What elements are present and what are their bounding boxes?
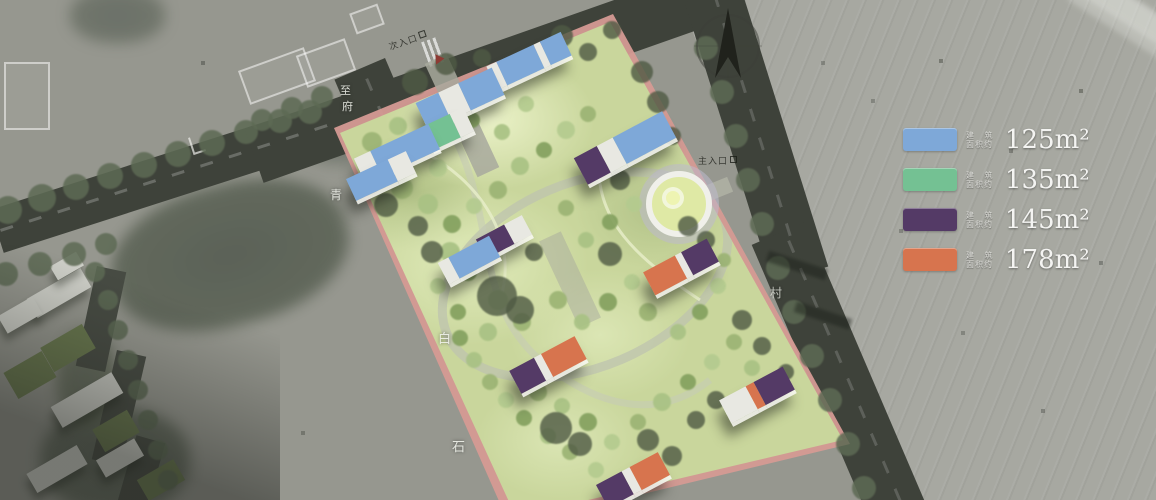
tree <box>624 274 640 290</box>
tree <box>494 124 510 140</box>
tree <box>311 86 333 108</box>
tree <box>85 262 105 282</box>
entrance-text: 次入口 <box>388 34 420 53</box>
tree <box>631 61 653 83</box>
tree <box>647 91 669 113</box>
legend-swatch-135 <box>903 168 957 191</box>
existing-building <box>0 296 42 333</box>
tree <box>63 174 89 200</box>
tree <box>408 216 428 236</box>
legend-prefix: 建 筑面积约 <box>966 171 998 189</box>
road-name-char: 至 <box>340 82 351 98</box>
tree <box>852 476 876 500</box>
legend-item: 建 筑面积约 135m² <box>903 168 1090 191</box>
legend-prefix-line2: 面积约 <box>966 260 998 269</box>
tree <box>118 350 138 370</box>
north-arrow-icon <box>692 2 764 92</box>
tree <box>568 432 592 456</box>
tree <box>429 159 447 177</box>
legend-swatch-145 <box>903 208 957 231</box>
legend-item: 建 筑面积约 178m² <box>903 248 1090 271</box>
legend-swatch-178 <box>903 248 957 271</box>
legend-value: 178m² <box>1005 245 1090 275</box>
main-entrance-label: 主入口 <box>698 154 737 167</box>
tree <box>588 462 604 478</box>
tree <box>602 214 618 230</box>
legend-value-unit: m² <box>1055 165 1090 195</box>
tree <box>98 290 118 310</box>
site-plan-canvas: 至 府 青 白 石 村 次入口 主入口 建 筑面积约 125m² 建 筑面积约 … <box>0 0 1156 500</box>
tree <box>818 388 842 412</box>
entrance-marker-icon <box>730 156 737 163</box>
tree <box>28 252 52 276</box>
tree <box>626 196 642 212</box>
tree <box>374 193 398 217</box>
tree <box>511 157 529 175</box>
road-name-char: 石 <box>452 436 465 455</box>
tree <box>536 142 552 158</box>
tree <box>557 121 575 139</box>
legend-value: 125m² <box>1005 125 1090 155</box>
tree <box>662 446 682 466</box>
tree <box>744 360 760 376</box>
legend-value-unit: m² <box>1055 245 1090 275</box>
legend-prefix-line1: 建 筑 <box>966 131 998 140</box>
tree <box>724 124 748 148</box>
tree <box>479 323 497 341</box>
tree <box>62 242 86 266</box>
legend-prefix-line1: 建 筑 <box>966 211 998 220</box>
tree <box>108 320 128 340</box>
tree <box>687 411 705 429</box>
tree <box>28 184 56 212</box>
tree <box>836 432 860 456</box>
tree <box>704 354 720 370</box>
legend-item: 建 筑面积约 125m² <box>903 128 1090 151</box>
legend-value: 135m² <box>1005 165 1090 195</box>
tree <box>97 163 123 189</box>
tree <box>574 314 590 330</box>
tree <box>579 43 597 61</box>
secondary-entrance-label: 次入口 <box>387 28 428 53</box>
tree <box>753 337 771 355</box>
tree <box>450 304 466 320</box>
legend-prefix: 建 筑面积约 <box>966 131 998 149</box>
tree <box>598 242 622 266</box>
road-name-char: 白 <box>438 328 451 347</box>
tree <box>630 414 646 430</box>
tree <box>430 278 446 294</box>
tree <box>402 69 428 95</box>
tree <box>165 141 191 167</box>
legend-swatch-125 <box>903 128 957 151</box>
legend-value-unit: m² <box>1055 125 1090 155</box>
tree <box>443 215 461 233</box>
tree <box>726 334 742 350</box>
tree <box>549 291 567 309</box>
tree <box>95 233 117 255</box>
legend-prefix-line1: 建 筑 <box>966 251 998 260</box>
tree <box>670 324 686 340</box>
tree <box>800 344 824 368</box>
tree <box>389 117 407 135</box>
tree <box>482 374 498 390</box>
legend-value-number: 135 <box>1005 165 1055 195</box>
legend-value-unit: m² <box>1055 205 1090 235</box>
tree <box>148 440 168 460</box>
tree <box>732 310 752 330</box>
legend-prefix-line1: 建 筑 <box>966 171 998 180</box>
legend-prefix-line2: 面积约 <box>966 220 998 229</box>
legend-prefix-line2: 面积约 <box>966 140 998 149</box>
tree <box>498 392 514 408</box>
tree <box>489 181 507 199</box>
tree <box>692 304 708 320</box>
legend: 建 筑面积约 125m² 建 筑面积约 135m² 建 筑面积约 145m² 建… <box>903 128 1090 288</box>
legend-value: 145m² <box>1005 205 1090 235</box>
building-outline <box>349 4 385 35</box>
tree <box>199 130 225 156</box>
legend-prefix-line2: 面积约 <box>966 180 998 189</box>
road-name-char: 青 <box>330 186 342 203</box>
tree <box>466 198 482 214</box>
tree <box>421 241 443 263</box>
tree <box>678 216 698 236</box>
tree <box>281 97 303 119</box>
tree <box>518 96 534 112</box>
tree <box>637 429 659 451</box>
entrance-text: 主入口 <box>698 157 728 167</box>
tree <box>653 393 671 411</box>
tree <box>680 374 696 390</box>
tree <box>736 168 760 192</box>
legend-prefix: 建 筑面积约 <box>966 251 998 269</box>
tree <box>452 330 468 346</box>
tree <box>710 278 726 294</box>
ground-texture <box>0 0 2 2</box>
tree <box>558 200 574 216</box>
tree <box>599 293 617 311</box>
tree <box>128 380 148 400</box>
tree <box>604 434 620 450</box>
legend-item: 建 筑面积约 145m² <box>903 208 1090 231</box>
tree <box>418 194 438 214</box>
tree <box>0 262 18 286</box>
tree <box>466 352 482 368</box>
tree <box>578 232 594 248</box>
tree <box>131 152 157 178</box>
tree <box>525 243 543 261</box>
entrance-marker-icon <box>418 30 427 39</box>
legend-prefix: 建 筑面积约 <box>966 211 998 229</box>
tree <box>516 410 532 426</box>
tree <box>750 212 774 236</box>
tree <box>540 412 572 444</box>
tree <box>639 303 657 321</box>
legend-value-number: 145 <box>1005 205 1055 235</box>
tree <box>603 21 621 39</box>
tree <box>506 296 534 324</box>
legend-value-number: 125 <box>1005 125 1055 155</box>
building-outline <box>4 62 50 130</box>
road-name-char: 村 <box>770 284 782 301</box>
tree <box>251 109 273 131</box>
tree <box>138 410 158 430</box>
tree <box>158 470 178 490</box>
tree-mass <box>70 0 165 43</box>
tree <box>579 413 597 431</box>
road-name-char: 府 <box>342 98 353 114</box>
tree <box>580 106 596 122</box>
legend-value-number: 178 <box>1005 245 1055 275</box>
